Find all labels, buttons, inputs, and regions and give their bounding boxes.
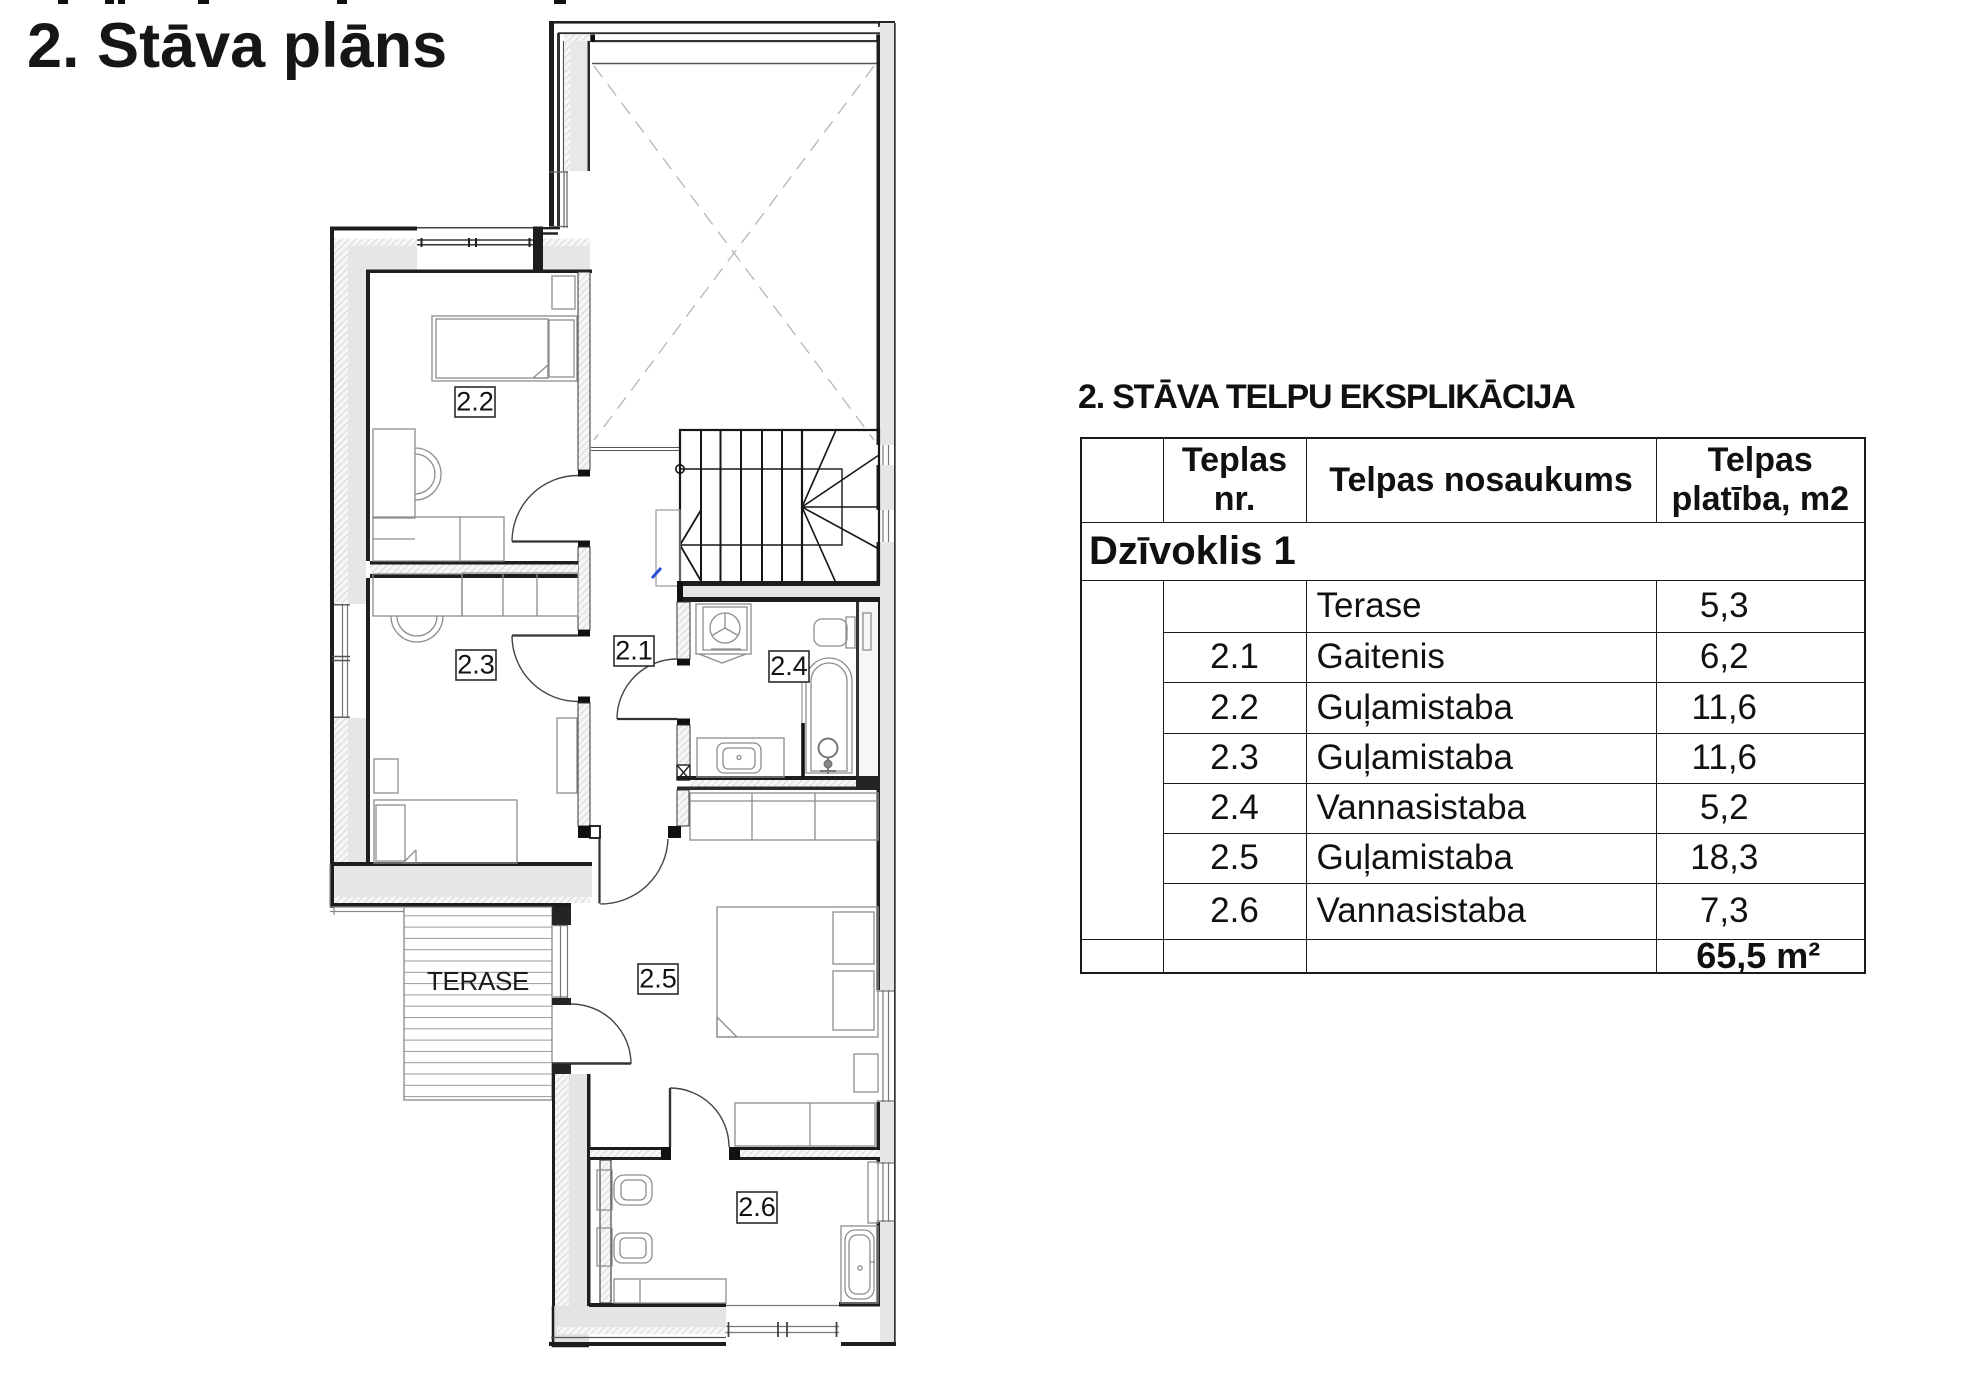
svg-text:TERASE: TERASE (427, 966, 529, 996)
svg-text:2.2: 2.2 (456, 387, 494, 417)
svg-text:2.6: 2.6 (738, 1192, 776, 1222)
svg-text:2.1: 2.1 (615, 636, 653, 666)
svg-text:2.3: 2.3 (457, 650, 495, 680)
svg-text:2.4: 2.4 (770, 651, 808, 681)
svg-text:2.5: 2.5 (639, 964, 677, 994)
